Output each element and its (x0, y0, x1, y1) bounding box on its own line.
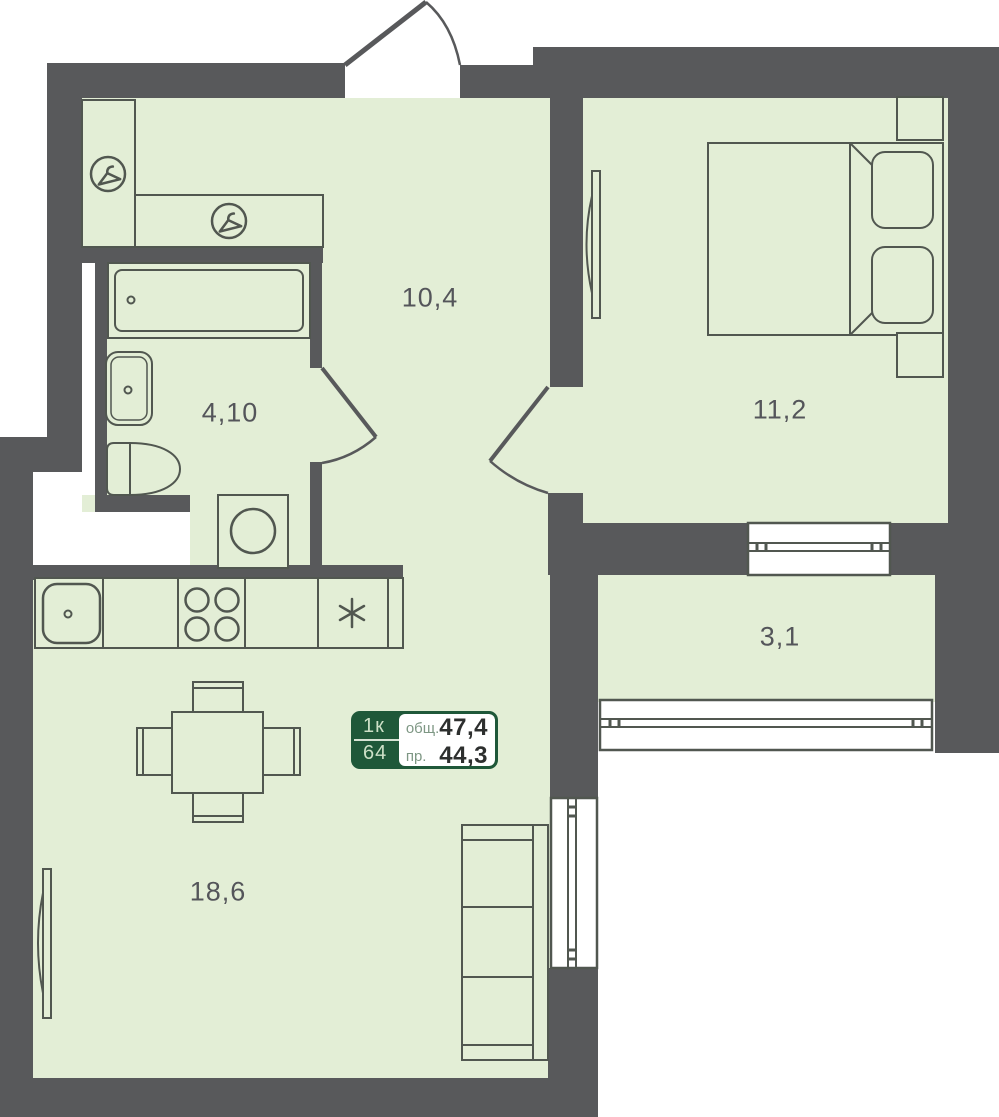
wall-bathroom-bottom (95, 495, 190, 512)
wall-right-bedroom (948, 47, 999, 523)
wall-left-lower (0, 472, 33, 1117)
toilet (107, 443, 180, 495)
total-area-row: общ. 47,4 (399, 714, 495, 742)
room-area-label-balcony: 3,1 (760, 622, 801, 653)
total-area-label: общ. (406, 720, 439, 737)
pillow (872, 152, 933, 228)
apartment-info-badge: 1к 64 общ. 47,4 пр. 44,3 (351, 711, 498, 769)
nightstand-top (897, 97, 943, 140)
wall-closet-bathroom (82, 247, 323, 263)
bedroom-door-opening-floor (548, 387, 583, 493)
wall-bathroom-right-lower (310, 462, 322, 567)
entrance-door-leaf (345, 2, 426, 65)
room-area-label-bathroom: 4,10 (202, 398, 259, 429)
living-area-label: пр. (406, 748, 427, 765)
unit-number: 64 (354, 739, 399, 766)
wall-top-left (47, 63, 345, 98)
chair-top (193, 682, 243, 712)
wall-bedroom-balcony-right (890, 523, 948, 575)
sofa (462, 825, 548, 1060)
chair-bottom (193, 793, 243, 822)
room-area-label-bedroom: 11,2 (753, 395, 808, 426)
bathtub (108, 263, 310, 338)
floor-plan: 10,4 4,10 11,2 3,1 18,6 1к 64 общ. 47,4 … (0, 0, 999, 1117)
wall-gap (82, 263, 95, 495)
wall-top-mid (460, 65, 533, 98)
wall-bottom (33, 1078, 598, 1117)
pillow (872, 247, 933, 323)
living-room-window (551, 798, 597, 968)
rooms-count: 1к (354, 714, 399, 739)
wall-left-step (0, 437, 82, 472)
wall-top-right (533, 47, 999, 98)
bedroom-balcony-window (748, 523, 890, 575)
living-area-row: пр. 44,3 (399, 742, 495, 769)
nightstand-bottom (897, 333, 943, 377)
wall-bedroom-door-stub (548, 493, 583, 523)
shaft-niche (33, 512, 190, 565)
wall-left-upper (47, 63, 82, 437)
room-area-label-hallway: 10,4 (402, 283, 459, 314)
living-area-value: 44,3 (439, 742, 488, 769)
room-area-label-living: 18,6 (190, 877, 247, 908)
wall-bedroom-balcony-left (548, 523, 748, 575)
entrance-door-swing-arc (426, 2, 460, 65)
bathroom-sink (106, 352, 152, 425)
total-area-value: 47,4 (439, 714, 488, 742)
bed (708, 143, 943, 335)
floor-plan-drawing (0, 0, 999, 1117)
balcony-window (600, 700, 932, 750)
wall-bathroom-right-upper (310, 263, 322, 368)
dining-table (172, 712, 263, 793)
wall-hall-bedroom (550, 98, 583, 387)
washing-machine (218, 495, 288, 568)
wall-below-window (548, 968, 598, 1078)
badge-left-column: 1к 64 (354, 714, 399, 766)
wall-living-balcony (550, 575, 598, 798)
badge-right-column: общ. 47,4 пр. 44,3 (399, 714, 495, 766)
